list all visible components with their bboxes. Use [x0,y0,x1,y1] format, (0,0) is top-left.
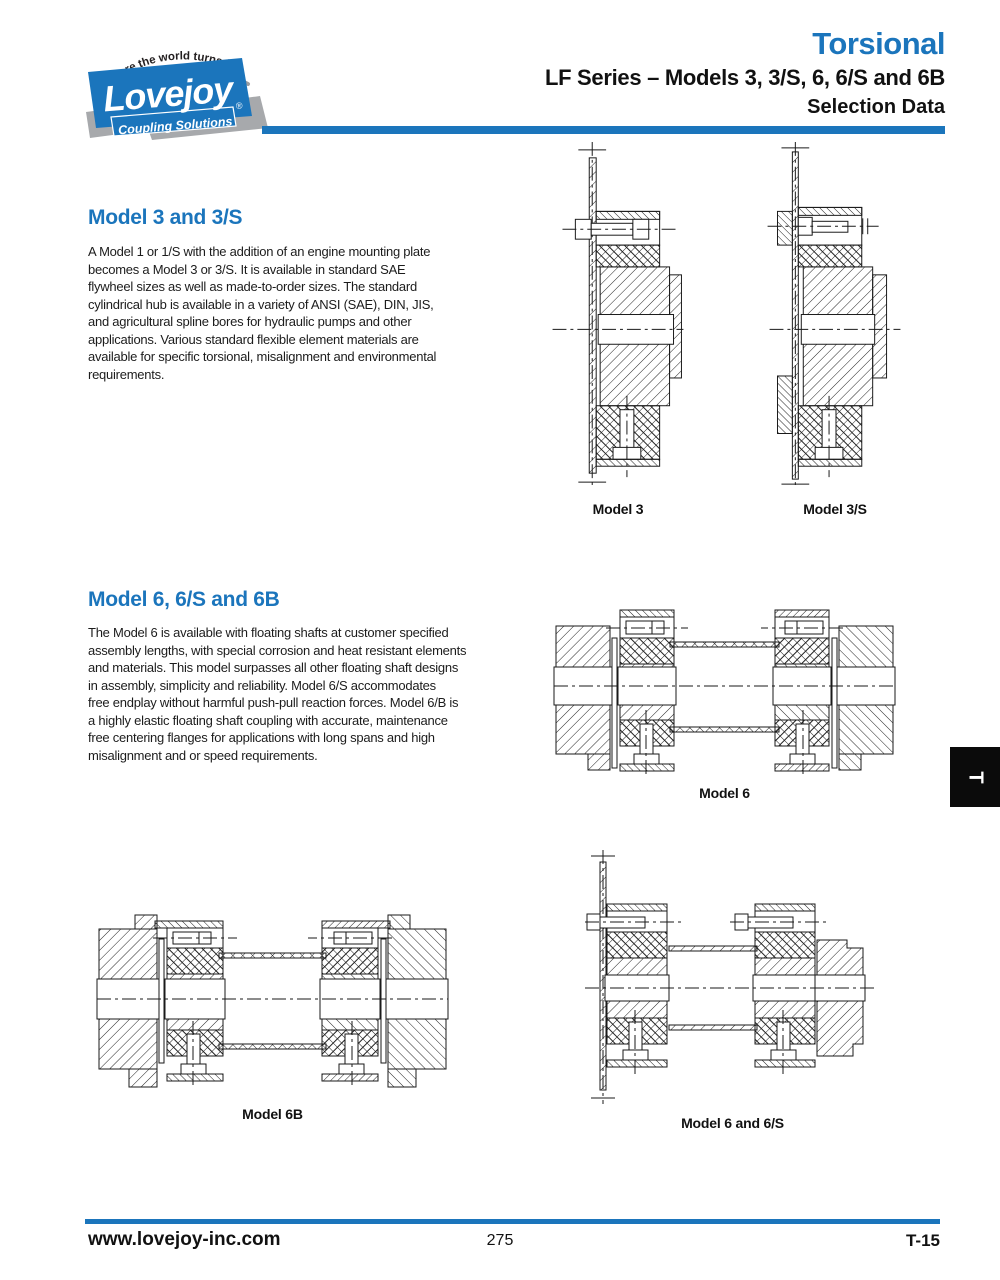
figure-caption: Model 6B [95,1106,450,1122]
figure-caption: Model 3/S [765,501,905,517]
model-6b-drawing [95,905,450,1097]
figure-model-6-6s: Model 6 and 6/S [585,848,880,1131]
lovejoy-logo: where the world turns for Lovejoy ® Coup… [80,22,275,149]
figure-caption: Model 3 [548,501,688,517]
model-3-drawing [548,140,688,492]
flywheel-plate [792,152,798,479]
section-heading-model-3: Model 3 and 3/S [88,206,242,230]
figure-model-3: Model 3 [548,140,688,517]
flex-element [167,948,223,974]
section-body-model-6: The Model 6 is available with floating s… [88,624,538,764]
series-subtitle: LF Series – Models 3, 3/S, 6, 6/S and 6B [545,64,945,92]
figure-caption: Model 6 and 6/S [585,1115,880,1131]
footer-page-code: T-15 [906,1231,940,1251]
figure-model-6: Model 6 [552,598,897,801]
page-title: Torsional [545,26,945,62]
flex-element [607,932,667,958]
footer-rule [85,1219,940,1224]
section-heading-model-6: Model 6, 6/S and 6B [88,588,280,612]
catalog-page: where the world turns for Lovejoy ® Coup… [0,0,1000,1280]
flex-element [620,638,674,664]
figure-caption: Model 6 [552,785,897,801]
model-3s-drawing [765,140,905,492]
footer-page-number: 275 [0,1232,1000,1250]
section-body-model-3: A Model 1 or 1/S with the addition of an… [88,243,528,383]
lovejoy-logo-graphic: where the world turns for Lovejoy ® Coup… [80,22,275,144]
header-rule [262,126,945,134]
figure-model-6b: Model 6B [95,905,450,1122]
section-index-tab: T [950,747,1000,807]
logo-registered-mark: ® [236,100,244,111]
flywheel-plate [589,158,596,473]
title-block: Torsional LF Series – Models 3, 3/S, 6, … [545,26,945,120]
selection-data-subtitle: Selection Data [545,95,945,120]
flex-element [798,245,861,267]
figure-model-3s: Model 3/S [765,140,905,517]
flex-element [596,245,659,267]
floating-shaft-tube [669,946,757,951]
model-6-6s-drawing [585,848,880,1106]
section-index-tab-label: T [964,771,987,783]
model-6-drawing [552,598,897,776]
